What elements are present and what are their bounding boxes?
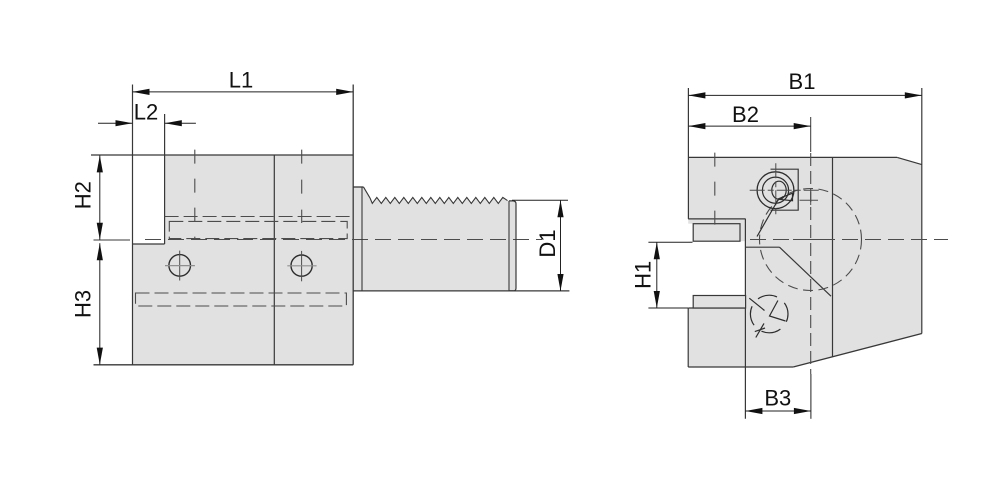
svg-text:B3: B3 (764, 386, 791, 411)
svg-text:B1: B1 (789, 69, 816, 94)
svg-text:H2: H2 (71, 181, 96, 209)
svg-text:B2: B2 (732, 102, 759, 127)
svg-text:H3: H3 (71, 290, 96, 318)
svg-text:L2: L2 (134, 100, 158, 125)
svg-text:H1: H1 (631, 261, 656, 289)
svg-text:D1: D1 (535, 229, 560, 257)
svg-text:L1: L1 (229, 68, 253, 93)
